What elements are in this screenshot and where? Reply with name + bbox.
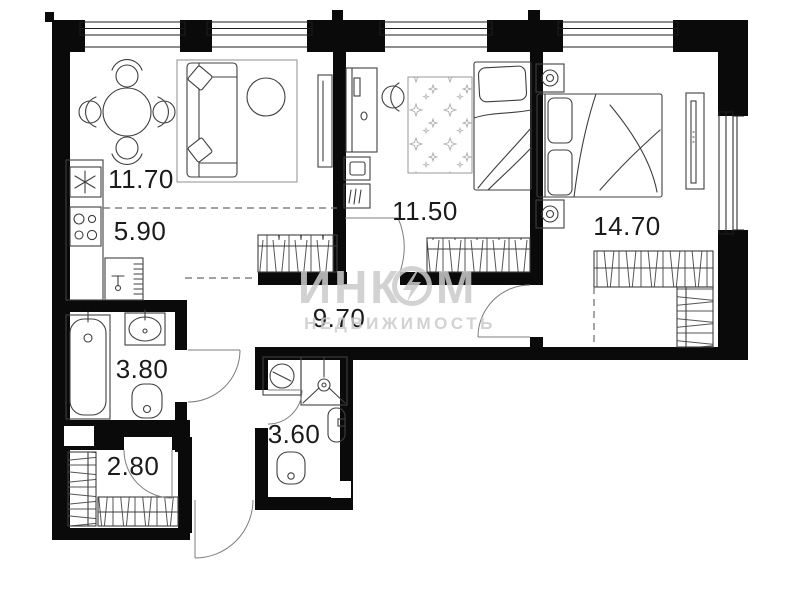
single-bed: [474, 62, 531, 190]
tv-panel: [686, 93, 704, 189]
room-area-label-living: 11.70: [108, 164, 174, 194]
bathroom-sink: [125, 310, 165, 345]
room-area-label-wc: 3.60: [268, 419, 321, 449]
room-area-label-bedroom-2: 14.70: [593, 211, 661, 241]
shelf: [344, 157, 370, 180]
pillow: [548, 150, 572, 195]
room-area-label-bedroom-1: 11.50: [392, 196, 458, 226]
tv-stand: [318, 75, 332, 167]
sofa: [187, 63, 237, 177]
desk: [346, 68, 377, 152]
dining-chair: [112, 137, 142, 164]
wardrobe: [677, 287, 713, 347]
window: [380, 22, 492, 47]
wall-niche: [64, 426, 94, 446]
washing-machine: [263, 357, 301, 395]
bathtub: [66, 312, 110, 419]
door-bathroom: [188, 350, 240, 402]
kitchen-sink-unit: [105, 258, 143, 300]
pillow: [548, 98, 572, 143]
dining-chair: [153, 97, 175, 127]
pillow: [478, 66, 527, 102]
watermark-brand-end: М: [436, 261, 477, 313]
dining-table: [103, 88, 151, 136]
double-bed: [537, 94, 662, 197]
sofa-pillow: [187, 65, 212, 90]
window: [558, 22, 678, 47]
kitchen-sink: [70, 167, 101, 197]
window: [719, 112, 744, 234]
watermark-tagline: НЕДВИЖИМОСТЬ: [304, 314, 496, 333]
wardrobe: [68, 452, 96, 526]
window: [207, 22, 312, 47]
room-area-label-storage: 2.80: [107, 451, 160, 481]
door-entrance: [195, 500, 253, 558]
shelf: [344, 184, 370, 208]
wardrobe: [594, 251, 713, 287]
dining-chair: [112, 60, 142, 87]
toilet: [277, 452, 305, 484]
coffee-table: [247, 78, 285, 116]
watermark: ИНК М НЕДВИЖИМОСТЬ: [298, 261, 496, 333]
dining-chair: [79, 97, 101, 127]
toilet: [132, 384, 162, 418]
room-area-label-kitchen: 5.90: [114, 216, 167, 246]
wardrobe: [98, 497, 178, 526]
floor-plan: 11.70 5.90 11.50 14.70 9.70 3.80 3.60 2.…: [0, 0, 800, 593]
room-area-label-bathroom: 3.80: [116, 354, 169, 384]
rug-stars: [408, 77, 472, 173]
desk-chair: [382, 83, 404, 111]
floor-plan-canvas: 11.70 5.90 11.50 14.70 9.70 3.80 3.60 2.…: [0, 0, 800, 593]
sofa-pillow: [187, 137, 212, 162]
bedroom-1: [344, 62, 531, 272]
window: [80, 22, 185, 47]
bedroom-2: [536, 64, 713, 347]
kitchen-hob: [70, 207, 101, 246]
watermark-brand-start: ИНК: [298, 261, 401, 313]
wall-niche: [331, 481, 351, 498]
